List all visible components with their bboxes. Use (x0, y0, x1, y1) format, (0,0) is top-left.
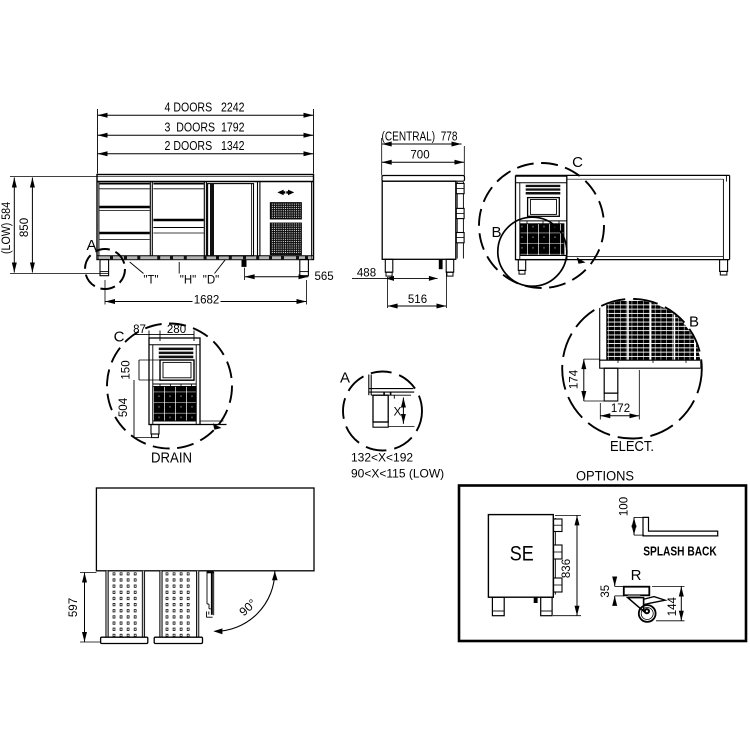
svg-text:R: R (631, 567, 642, 584)
svg-text:144: 144 (667, 597, 679, 617)
svg-text:(CENTRAL) 778: (CENTRAL) 778 (382, 130, 458, 144)
svg-text:2 DOORS 1342: 2 DOORS 1342 (165, 139, 245, 153)
svg-text:"T": "T" (143, 275, 158, 287)
svg-text:A: A (340, 370, 350, 387)
svg-text:B: B (491, 224, 501, 241)
svg-text:597: 597 (68, 598, 80, 617)
svg-text:SE: SE (510, 542, 534, 566)
svg-text:150: 150 (121, 360, 133, 379)
svg-text:OPTIONS: OPTIONS (576, 469, 634, 484)
svg-text:280: 280 (167, 324, 186, 336)
svg-text:SPLASH BACK: SPLASH BACK (643, 544, 717, 559)
svg-text:1682: 1682 (194, 295, 220, 307)
svg-text:C: C (572, 154, 583, 171)
svg-text:100: 100 (619, 497, 631, 516)
svg-text:516: 516 (408, 294, 427, 306)
svg-text:836: 836 (561, 559, 573, 578)
svg-text:ELECT.: ELECT. (610, 439, 654, 455)
svg-text:700: 700 (410, 150, 429, 162)
svg-text:X: X (393, 405, 401, 419)
svg-text:DRAIN: DRAIN (151, 451, 192, 467)
svg-text:"H": "H" (180, 275, 196, 287)
svg-text:174: 174 (569, 369, 581, 389)
svg-text:87: 87 (133, 324, 146, 336)
svg-text:565: 565 (315, 271, 334, 283)
svg-text:"D": "D" (203, 275, 219, 287)
svg-text:172: 172 (611, 403, 630, 415)
svg-text:4 DOORS 2242: 4 DOORS 2242 (165, 101, 245, 115)
svg-text:504: 504 (118, 397, 130, 417)
svg-text:488: 488 (357, 267, 376, 279)
svg-text:B: B (689, 314, 699, 331)
svg-text:850: 850 (19, 218, 31, 237)
svg-text:3 DOORS 1792: 3 DOORS 1792 (165, 120, 245, 134)
svg-text:(LOW) 584: (LOW) 584 (1, 201, 13, 254)
svg-text:132<X<192: 132<X<192 (351, 451, 413, 465)
svg-text:90<X<115 (LOW): 90<X<115 (LOW) (351, 467, 444, 481)
svg-text:A: A (86, 237, 96, 254)
svg-text:35: 35 (600, 585, 612, 598)
svg-text:C: C (114, 329, 125, 346)
